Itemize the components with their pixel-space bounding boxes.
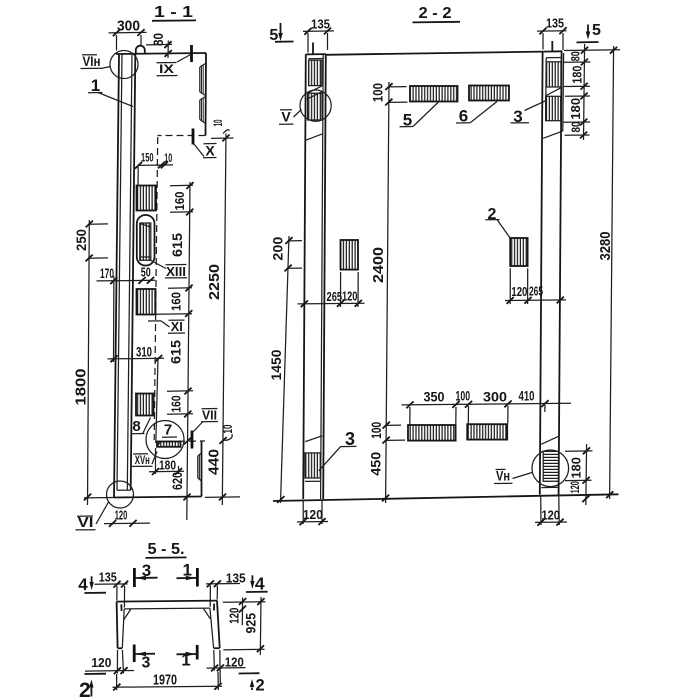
svg-text:2: 2 (79, 679, 91, 700)
svg-text:4: 4 (255, 574, 265, 594)
svg-text:450: 450 (368, 452, 384, 476)
svg-text:620: 620 (170, 472, 185, 490)
svg-text:160: 160 (168, 396, 183, 413)
svg-text:XIII: XIII (166, 265, 186, 279)
svg-text:2 - 2: 2 - 2 (419, 5, 452, 22)
svg-text:10: 10 (211, 119, 225, 126)
svg-text:4: 4 (78, 575, 88, 594)
svg-text:100: 100 (370, 83, 386, 102)
svg-text:120: 120 (342, 289, 358, 303)
svg-text:120: 120 (91, 655, 111, 670)
svg-text:160: 160 (172, 192, 187, 211)
svg-text:180: 180 (569, 457, 583, 479)
svg-text:200: 200 (270, 236, 286, 260)
svg-text:135: 135 (99, 570, 117, 585)
svg-text:120: 120 (511, 285, 527, 299)
svg-text:925: 925 (243, 613, 259, 634)
svg-text:310: 310 (136, 344, 152, 360)
svg-text:350: 350 (424, 388, 445, 404)
svg-text:XVн: XVн (135, 455, 150, 467)
svg-text:1: 1 (182, 561, 191, 580)
svg-text:2: 2 (256, 677, 265, 695)
svg-text:440: 440 (206, 449, 222, 475)
svg-text:1 - 1: 1 - 1 (154, 4, 193, 21)
svg-text:615: 615 (169, 233, 185, 257)
svg-text:265: 265 (327, 290, 343, 304)
svg-text:135: 135 (546, 16, 564, 31)
svg-text:1800: 1800 (73, 369, 89, 406)
svg-text:3: 3 (142, 654, 151, 671)
svg-text:170: 170 (100, 265, 114, 281)
svg-text:V: V (281, 109, 291, 125)
svg-text:180: 180 (569, 98, 583, 120)
svg-text:50: 50 (141, 265, 151, 280)
svg-text:120: 120 (115, 508, 128, 523)
svg-text:2250: 2250 (206, 264, 223, 300)
svg-text:180: 180 (159, 459, 176, 473)
svg-text:2400: 2400 (370, 247, 387, 283)
svg-text:XI: XI (171, 319, 183, 334)
svg-text:80: 80 (569, 121, 583, 132)
svg-text:120: 120 (568, 481, 582, 493)
svg-text:10: 10 (221, 424, 235, 433)
svg-text:VIн: VIн (83, 54, 101, 69)
svg-text:120: 120 (227, 608, 241, 624)
svg-text:2: 2 (488, 206, 497, 223)
svg-text:8: 8 (132, 418, 140, 435)
svg-text:135: 135 (311, 17, 330, 32)
svg-text:180: 180 (570, 66, 584, 84)
svg-text:X: X (205, 143, 215, 159)
svg-text:1450: 1450 (268, 349, 284, 380)
svg-text:410: 410 (519, 387, 535, 403)
svg-text:1: 1 (181, 651, 190, 670)
svg-text:5: 5 (592, 22, 601, 39)
svg-text:150: 150 (141, 153, 154, 165)
svg-text:5 - 5.: 5 - 5. (148, 541, 185, 558)
svg-text:IX: IX (159, 62, 174, 76)
svg-text:250: 250 (73, 229, 89, 251)
svg-text:265: 265 (529, 284, 543, 298)
svg-text:VII: VII (202, 409, 217, 423)
svg-text:7: 7 (164, 422, 172, 439)
svg-text:3: 3 (142, 561, 151, 580)
svg-text:100: 100 (369, 422, 384, 439)
svg-text:300: 300 (483, 389, 507, 405)
svg-text:3280: 3280 (598, 232, 614, 261)
svg-text:160: 160 (168, 292, 183, 311)
svg-text:615: 615 (168, 340, 184, 364)
svg-text:80: 80 (568, 51, 582, 61)
svg-text:100: 100 (456, 388, 471, 404)
